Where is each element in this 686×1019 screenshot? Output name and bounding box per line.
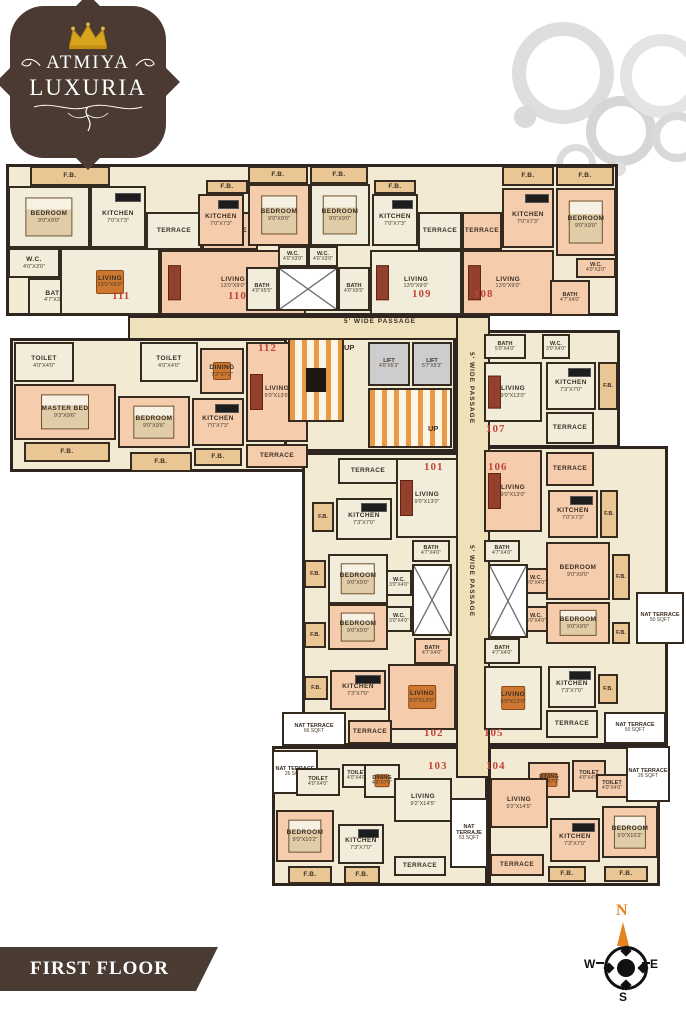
room-label: F.B. — [332, 171, 345, 178]
room-label: KITCHEN — [557, 507, 589, 514]
room-dimensions: 7'3"X7'0" — [556, 688, 588, 694]
room-dimensions: 7'3"X7'0" — [345, 845, 377, 851]
room-dimensions: 4'0"X4'0" — [308, 782, 328, 788]
core-icon — [306, 368, 326, 392]
room-label: TERRACE — [353, 728, 387, 735]
room-f-b: F.B. — [598, 362, 618, 410]
compass-west-label: W — [584, 957, 595, 971]
compass-rose-icon — [604, 946, 648, 990]
room-area — [278, 267, 338, 311]
room-dimensions: 4'0"X5'5" — [252, 289, 272, 295]
room-label: KITCHEN — [202, 415, 234, 422]
room-label: LIVING — [496, 276, 521, 283]
room-bedroom: BEDROOM9'0"X9'0" — [8, 186, 90, 248]
room-dimensions: 9'0"X9'0" — [261, 216, 298, 222]
room-dimensions: 5'0"X4'0" — [495, 347, 515, 353]
floor-plan-page: ATMIYA LUXURIA F.B.BEDROOM9'0"X9'0"KITCH… — [0, 0, 686, 1019]
room-kitchen: KITCHEN7'0"X7'3" — [372, 194, 418, 246]
room-dimensions: 66 SQFT — [294, 729, 333, 735]
room-f-b: F.B. — [310, 166, 368, 184]
room-dimensions: 9'0"X9'0" — [31, 218, 68, 224]
room-bedroom: BEDROOM9'0"X9'0" — [546, 542, 610, 600]
stove-icon — [572, 823, 595, 832]
room-f-b: F.B. — [556, 166, 614, 186]
room-dimensions: 7'0"X7'3" — [557, 515, 589, 521]
room-bath: BATH4'0"X5'5" — [338, 267, 370, 311]
room-bedroom: BEDROOM9'0"X9'0" — [328, 604, 388, 650]
room-f-b: F.B. — [598, 674, 618, 704]
room-dimensions: 4'0"X4'0" — [31, 363, 56, 369]
room-label: BEDROOM — [31, 210, 68, 217]
room-dimensions: 50 SQFT — [615, 728, 654, 734]
room-nat-terrace: NAT TERRACE26 SQFT — [626, 746, 670, 802]
room-bedroom: BEDROOM9'0"X9'6" — [118, 396, 190, 448]
unit-number-109: 109 — [412, 288, 432, 300]
room-f-b: F.B. — [548, 866, 586, 882]
compass-north-label: N — [616, 902, 628, 920]
unit-number-108: 108 — [474, 288, 494, 300]
flourish-icon — [20, 56, 42, 70]
room-kitchen: KITCHEN7'0"X7'3" — [548, 490, 598, 538]
room-dimensions: 9'0"X13'0" — [501, 699, 526, 705]
room-dimensions: 4'0"X4'0" — [156, 363, 181, 369]
logo-line2: LUXURIA — [29, 75, 147, 101]
room-label: TERRACE — [553, 424, 587, 431]
room-dimensions: 4'0"X3'0" — [586, 268, 606, 274]
room-w-c: W.C.4'0"X3'0" — [278, 246, 308, 267]
room-f-b: F.B. — [344, 866, 380, 884]
room-toilet: TOILET4'0"X4'0" — [14, 342, 74, 382]
room-kitchen: KITCHEN7'3"X7'0" — [336, 498, 392, 540]
unit-number-104: 104 — [486, 760, 506, 772]
room-kitchen: KITCHEN7'3"X7'0" — [338, 824, 384, 864]
room-label: KITCHEN — [512, 211, 544, 218]
room-dimensions: 13'0"X9'0" — [496, 283, 521, 289]
room-dimensions: 53 SQFT — [452, 836, 486, 842]
room-f-b: F.B. — [312, 502, 334, 532]
room-area — [368, 388, 452, 448]
room-dimensions: 9'0"X10'2" — [287, 837, 324, 843]
room-kitchen: KITCHEN7'0"X7'3" — [198, 194, 244, 246]
room-f-b: F.B. — [248, 166, 308, 184]
room-dimensions: 7'3"X7'0" — [348, 520, 380, 526]
room-dimensions: 7'2"X7'2" — [209, 372, 234, 378]
room-dimensions: 4'7"X4'0" — [421, 551, 441, 557]
room-toilet: TOILET4'0"X4'0" — [296, 768, 340, 796]
room-label: TERRACE — [260, 452, 294, 459]
room-dimensions: 4'0"X3'0" — [283, 257, 303, 263]
room-dimensions: 7'0"X7'3" — [102, 218, 134, 224]
room-dining: DINING7'2"X7'2" — [200, 348, 244, 394]
room-dimensions: 3'0"X4'0" — [389, 619, 409, 625]
room-kitchen: KITCHEN7'3"X7'0" — [330, 670, 386, 710]
room-dimensions: 13'0"X9'0" — [221, 283, 246, 289]
room-dimensions: 9'0"X13'0" — [501, 492, 526, 498]
room-label: KITCHEN — [342, 683, 374, 690]
room-dimensions: 50 SQFT — [640, 618, 679, 624]
unit-number-105: 105 — [484, 727, 504, 739]
room-dimensions: 9'0"X9'0" — [340, 580, 377, 586]
sofa-icon — [488, 376, 501, 409]
room-label: LIVING — [221, 276, 246, 283]
room-label: LIVING — [415, 491, 440, 498]
room-dimensions: 13'0"X9'0" — [98, 282, 123, 288]
room-label: KITCHEN — [348, 512, 380, 519]
room-dimensions: 9'2"X14'5" — [411, 801, 436, 807]
room-label: KITCHEN — [556, 680, 588, 687]
room-label: KITCHEN — [205, 213, 237, 220]
unit-number-106: 106 — [488, 461, 508, 473]
stove-icon — [218, 200, 239, 209]
room-bath: BATH4'7"X4'0" — [484, 638, 520, 664]
room-f-b: F.B. — [612, 622, 630, 644]
room-living: LIVING13'0"X9'0" — [370, 250, 462, 315]
room-label: BEDROOM — [287, 829, 324, 836]
room-terrace: TERRACE — [246, 444, 308, 468]
room-f-b: F.B. — [194, 448, 242, 466]
room-terrace: TERRACE — [546, 710, 598, 738]
room-label: TOILET — [31, 355, 56, 362]
room-lift: LIFT4'0"X5'3" — [368, 342, 410, 386]
room-dimensions: 9'0"X9'6" — [136, 423, 173, 429]
room-w-c: W.C.4'0"X3'0" — [8, 248, 60, 278]
sofa-icon — [400, 480, 413, 516]
room-terrace: TERRACE — [490, 854, 544, 876]
room-bath: BATH5'0"X4'0" — [484, 334, 526, 359]
stove-icon — [392, 200, 413, 209]
room-label: F.B. — [311, 685, 321, 691]
passage-label: 5' WIDE PASSAGE — [461, 352, 475, 472]
room-label: LIVING — [501, 385, 526, 392]
unit-number-107: 107 — [486, 423, 506, 435]
room-bath: BATH4'7"X4'0" — [550, 280, 590, 316]
room-label: TERRACE — [465, 227, 499, 234]
room-dimensions: 7'0"X7'3" — [512, 219, 544, 225]
sofa-icon — [488, 473, 501, 509]
room-bath: BATH4'7"X4'0" — [484, 540, 520, 562]
room-bath: BATH4'7"X4'0" — [414, 638, 450, 664]
room-bath: BATH4'7"X4'0" — [412, 540, 450, 562]
room-dimensions: 3'0"X4'0" — [546, 347, 566, 353]
room-dimensions: 9'0"X13'0" — [501, 393, 526, 399]
room-label: TERRACE — [157, 227, 191, 234]
flourish-icon — [134, 56, 156, 70]
room-nat-terrace: NAT TERRACE50 SQFT — [636, 592, 684, 644]
stove-icon — [525, 194, 549, 203]
room-terrace: TERRACE — [394, 856, 446, 876]
room-dimensions: 9'0"X9'0" — [568, 223, 605, 229]
room-toilet: TOILET4'0"X4'0" — [140, 342, 198, 382]
room-f-b: F.B. — [206, 180, 248, 194]
room-label: F.B. — [603, 383, 613, 389]
room-f-b: F.B. — [288, 866, 332, 884]
room-dimensions: 4'0"X5'5" — [344, 289, 364, 295]
room-nat-terrace: NAT TERRACE66 SQFT — [282, 712, 346, 746]
room-toilet: TOILET4'0"X4'0" — [596, 774, 628, 798]
room-dimensions: 9'2"X14'5" — [507, 804, 532, 810]
room-w-c: W.C.4'0"X3'0" — [308, 246, 338, 267]
room-label: TERRACE — [553, 465, 587, 472]
room-label: TOILET — [156, 355, 181, 362]
room-terrace: TERRACE — [546, 412, 594, 444]
room-dimensions: 9'0"X13'6" — [265, 393, 290, 399]
compass-south-label: S — [619, 990, 627, 1004]
passage-label: 5' WIDE PASSAGE — [296, 318, 464, 325]
room-dimensions: 4'5"X7'0" — [372, 781, 392, 787]
room-dimensions: 7'0"X7'3" — [202, 423, 234, 429]
room-label: TERRACE — [555, 720, 589, 727]
unit-number-102: 102 — [424, 727, 444, 739]
room-label: F.B. — [355, 871, 368, 878]
floor-title: FIRST FLOOR — [0, 958, 169, 980]
room-dimensions: 9'0"X9'0" — [340, 628, 377, 634]
room-dimensions: 4'7"X4'0" — [422, 651, 442, 657]
room-label: BEDROOM — [560, 564, 597, 571]
room-dimensions: 7'3"X7'0" — [555, 387, 587, 393]
room-living: LIVING9'2"X14'5" — [490, 778, 548, 828]
ornament-icon — [28, 101, 148, 135]
room-terrace: TERRACE — [348, 720, 392, 744]
compass-east-label: E — [650, 957, 658, 971]
sofa-icon — [376, 265, 389, 301]
room-label: F.B. — [619, 870, 632, 877]
room-kitchen: KITCHEN7'3"X7'0" — [548, 666, 596, 708]
room-label: F.B. — [388, 183, 401, 190]
room-bath: BATH4'0"X5'5" — [246, 267, 278, 311]
stove-icon — [568, 368, 591, 377]
compass-north-arrow-icon — [617, 922, 629, 946]
room-label: TERRACE — [423, 227, 457, 234]
room-w-c: W.C.3'0"X4'0" — [386, 570, 412, 596]
room-nat-terraje: NAT TERRAJE53 SQFT — [450, 798, 488, 868]
room-label: BEDROOM — [340, 572, 377, 579]
room-dimensions: 4'7"X4'0" — [560, 298, 580, 304]
room-dimensions: 9'0"X9'0" — [560, 572, 597, 578]
room-terrace: TERRACE — [418, 212, 462, 250]
room-bedroom: BEDROOM9'0"X9'0" — [248, 184, 310, 246]
room-label: BEDROOM — [261, 208, 298, 215]
room-dimensions: 3'0"X4'0" — [389, 583, 409, 589]
room-kitchen: KITCHEN7'3"X7'0" — [546, 362, 596, 410]
room-label: TERRACE — [403, 862, 437, 869]
room-f-b: F.B. — [304, 676, 328, 700]
room-area — [488, 564, 528, 638]
room-dimensions: 4'0"X3'0" — [23, 264, 45, 270]
room-label: F.B. — [271, 171, 284, 178]
room-terrace: TERRACE — [146, 212, 202, 250]
room-label: F.B. — [578, 172, 591, 179]
room-label: F.B. — [560, 870, 573, 877]
room-f-b: F.B. — [304, 622, 326, 648]
room-label: BEDROOM — [612, 825, 649, 832]
room-label: F.B. — [154, 458, 167, 465]
room-label: TERRACE — [500, 861, 534, 868]
room-living: LIVING9'2"X14'5" — [394, 778, 452, 822]
stair-up-label: UP — [344, 343, 364, 352]
room-f-b: F.B. — [612, 554, 630, 600]
room-kitchen: KITCHEN7'0"X7'3" — [90, 186, 146, 248]
room-living: LIVING13'0"X9'0" — [60, 248, 160, 315]
room-dimensions: 9'0"X10'2" — [612, 833, 649, 839]
room-label: LIVING — [98, 275, 123, 282]
room-label: F.B. — [604, 511, 614, 517]
stove-icon — [361, 503, 387, 512]
room-label: F.B. — [521, 172, 534, 179]
room-dimensions: 3'0"X4'0" — [526, 619, 546, 625]
room-bedroom: BEDROOM9'0"X9'0" — [546, 602, 610, 644]
room-nat-terrace: NAT TERRACE50 SQFT — [604, 712, 666, 744]
floor-title-banner: FIRST FLOOR — [0, 947, 218, 991]
room-bedroom: BEDROOM9'0"X10'2" — [602, 806, 658, 858]
room-label: LIVING — [404, 276, 429, 283]
room-label: LIVING — [411, 793, 436, 800]
room-f-b: F.B. — [600, 490, 618, 538]
room-dimensions: 4'7"X4'0" — [492, 651, 512, 657]
room-label: F.B. — [310, 632, 320, 638]
room-bedroom: BEDROOM9'0"X9'0" — [328, 554, 388, 604]
room-label: LIVING — [507, 796, 532, 803]
room-dimensions: 9'0"X13'0" — [410, 698, 435, 704]
stove-icon — [215, 404, 239, 413]
room-dimensions: 7'0"X7'3" — [379, 221, 411, 227]
room-w-c: W.C.3'0"X4'0" — [542, 334, 570, 359]
room-dimensions: 7'3"X7'0" — [559, 841, 591, 847]
brand-logo: ATMIYA LUXURIA — [10, 6, 166, 158]
room-master-bed: MASTER BED9'3"X9'6" — [14, 384, 116, 440]
room-label: LIVING — [410, 690, 435, 697]
unit-number-103: 103 — [428, 760, 448, 772]
room-label: KITCHEN — [555, 379, 587, 386]
room-label: KITCHEN — [559, 833, 591, 840]
room-bedroom: BEDROOM9'0"X10'2" — [276, 810, 334, 862]
room-lift: LIFT5'7"X5'3" — [412, 342, 452, 386]
room-label: DINING — [209, 364, 234, 371]
room-label: F.B. — [616, 630, 626, 636]
room-label: KITCHEN — [345, 837, 377, 844]
room-label: F.B. — [616, 574, 626, 580]
sofa-icon — [168, 265, 181, 301]
compass: N W E S — [584, 902, 670, 1012]
room-label: KITCHEN — [379, 213, 411, 220]
room-terrace: TERRACE — [546, 452, 594, 486]
stove-icon — [569, 671, 591, 680]
room-living: LIVING9'0"X13'0" — [484, 666, 542, 730]
room-label: F.B. — [603, 686, 613, 692]
room-f-b: F.B. — [502, 166, 554, 186]
room-label: F.B. — [303, 871, 316, 878]
room-bedroom: BEDROOM9'0"X9'0" — [556, 188, 616, 256]
room-f-b: F.B. — [24, 442, 110, 462]
room-label: LIVING — [501, 484, 526, 491]
room-kitchen: KITCHEN7'0"X7'3" — [192, 398, 244, 446]
stove-icon — [115, 193, 141, 202]
room-dimensions: 9'0"X13'0" — [415, 499, 440, 505]
room-area — [288, 338, 344, 422]
room-label: BEDROOM — [136, 415, 173, 422]
room-dimensions: 3'0"X4'0" — [526, 581, 546, 587]
room-terrace: TERRACE — [462, 212, 502, 250]
stair-up-label: UP — [428, 424, 448, 433]
room-label: W.C. — [23, 256, 45, 263]
stove-icon — [570, 496, 593, 505]
room-dimensions: 9'0"X9'0" — [560, 624, 597, 630]
room-dimensions: 9'0"X9'0" — [322, 216, 359, 222]
room-label: F.B. — [318, 514, 328, 520]
room-dimensions: 7'3"X7'0" — [342, 691, 374, 697]
room-label: BEDROOM — [340, 620, 377, 627]
room-f-b: F.B. — [130, 452, 192, 472]
room-label: LIVING — [265, 385, 290, 392]
room-label: F.B. — [63, 172, 76, 179]
room-dimensions: 4'0"X5'3" — [379, 364, 399, 370]
room-kitchen: KITCHEN7'3"X7'0" — [550, 818, 600, 862]
room-dimensions: 4'0"X4'0" — [602, 786, 622, 792]
room-living: LIVING13'0"X9'0" — [462, 250, 554, 315]
crown-icon — [65, 22, 111, 50]
room-dimensions: 4'0"X3'0" — [313, 257, 333, 263]
unit-number-112: 112 — [258, 342, 277, 354]
room-dimensions: 9'3"X9'6" — [42, 413, 89, 419]
room-label: TERRACE — [351, 467, 385, 474]
room-f-b: F.B. — [604, 866, 648, 882]
room-living: LIVING9'0"X13'0" — [388, 664, 456, 730]
room-label: KITCHEN — [102, 210, 134, 217]
room-label: BEDROOM — [568, 215, 605, 222]
room-terrace: TERRACE — [338, 458, 398, 484]
room-f-b: F.B. — [374, 180, 416, 194]
room-dimensions: 4'7"X4'0" — [492, 551, 512, 557]
room-label: BEDROOM — [322, 208, 359, 215]
passage-label: 5' WIDE PASSAGE — [461, 545, 475, 665]
unit-number-111: 111 — [112, 290, 130, 302]
room-label: F.B. — [220, 183, 233, 190]
room-label: F.B. — [60, 448, 73, 455]
unit-number-101: 101 — [424, 461, 444, 473]
room-w-c: W.C.3'0"X4'0" — [386, 606, 412, 632]
room-area — [412, 564, 452, 636]
room-kitchen: KITCHEN7'0"X7'3" — [502, 188, 554, 248]
room-dimensions: 5'7"X5'3" — [422, 364, 442, 370]
room-living: LIVING9'0"X13'0" — [484, 362, 542, 422]
logo-line1: ATMIYA — [46, 52, 130, 74]
room-label: MASTER BED — [42, 405, 89, 412]
room-label: F.B. — [310, 571, 320, 577]
room-dimensions: 7'0"X7'3" — [205, 221, 237, 227]
room-f-b: F.B. — [30, 166, 110, 186]
room-label: LIVING — [501, 691, 526, 698]
room-dimensions: 26 SQFT — [628, 774, 667, 780]
sofa-icon — [250, 374, 263, 410]
room-label: BEDROOM — [560, 616, 597, 623]
room-w-c: W.C.4'0"X3'0" — [576, 258, 616, 278]
room-label: F.B. — [211, 453, 224, 460]
room-f-b: F.B. — [304, 560, 326, 588]
unit-number-110: 110 — [228, 290, 247, 302]
room-bedroom: BEDROOM9'0"X9'0" — [310, 184, 370, 246]
